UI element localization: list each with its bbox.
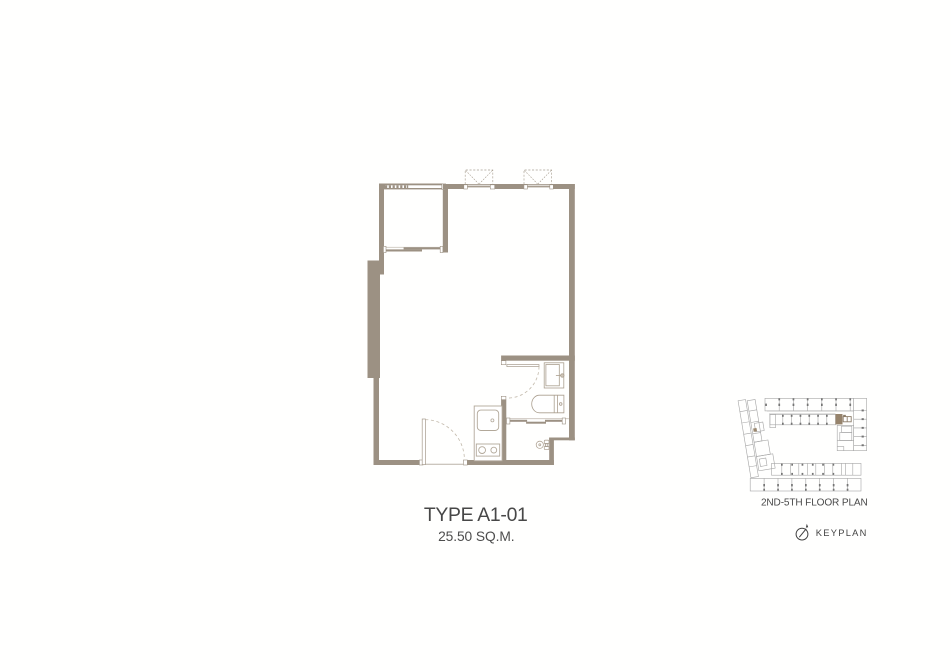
svg-text:TYPE A1-01: TYPE A1-01 [424,504,528,526]
svg-text:KEYPLAN: KEYPLAN [816,528,868,538]
svg-text:25.50 SQ.M.: 25.50 SQ.M. [438,529,514,544]
svg-text:2ND-5TH FLOOR PLAN: 2ND-5TH FLOOR PLAN [761,498,868,509]
